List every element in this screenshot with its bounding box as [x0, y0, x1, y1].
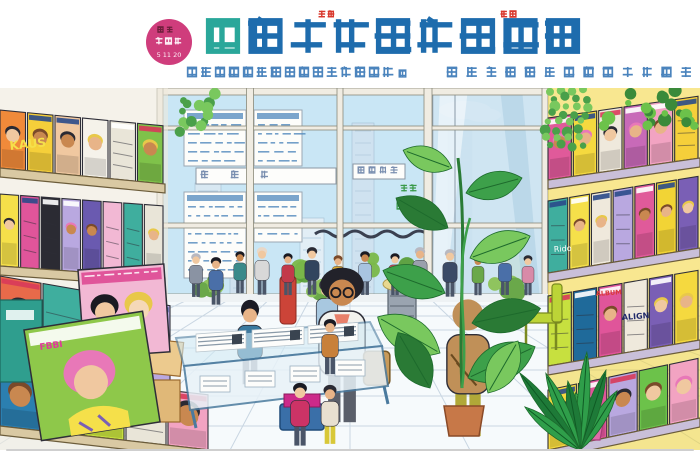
magazine-cover	[624, 104, 647, 169]
pseudo-glyph	[187, 67, 196, 77]
pseudo-glyph	[165, 38, 172, 45]
pseudo-glyph	[410, 184, 417, 191]
header: 5 11 20	[0, 0, 700, 88]
red-garment	[280, 276, 296, 324]
pseudo-glyph	[271, 67, 281, 77]
magazine-cover	[570, 194, 590, 269]
pseudo-glyph	[447, 67, 458, 77]
pseudo-glyph	[369, 67, 379, 77]
badge-date: 5 11 20	[157, 51, 182, 59]
pseudo-glyph	[355, 67, 366, 77]
magazine-cover	[548, 198, 568, 273]
magazine-cover	[635, 183, 655, 258]
pseudo-glyph	[369, 166, 376, 173]
pseudo-glyph	[327, 67, 338, 77]
pseudo-glyph	[201, 67, 211, 77]
pseudo-glyph	[681, 67, 691, 77]
pseudo-glyph	[510, 11, 517, 18]
pseudo-glyph	[545, 67, 555, 77]
pseudo-glyph	[157, 27, 163, 33]
pseudo-glyph	[505, 67, 516, 77]
pseudo-glyph	[503, 19, 539, 53]
window-sign	[353, 164, 405, 179]
pseudo-glyph	[565, 67, 575, 77]
magazine-cover	[83, 118, 109, 178]
magazine-cover	[55, 115, 81, 175]
magazine-cover	[21, 196, 40, 269]
magazine-cover	[138, 123, 164, 183]
pseudo-glyph	[319, 11, 326, 18]
pseudo-glyph	[401, 185, 408, 192]
pseudo-glyph	[603, 67, 614, 77]
subtitle-line	[187, 67, 691, 78]
magazine-cover	[657, 180, 677, 255]
pseudo-glyph	[583, 67, 594, 77]
window-sign	[196, 168, 336, 184]
pseudo-glyph	[248, 18, 282, 52]
magazine-cover	[613, 187, 633, 262]
pseudo-glyph	[661, 67, 671, 77]
pseudo-glyph	[383, 67, 394, 77]
pseudo-glyph	[545, 19, 580, 53]
magazine-cover	[649, 275, 672, 349]
magazine-cover	[41, 197, 60, 270]
cover-title-text: Rido	[554, 244, 572, 254]
issue-badge: 5 11 20	[146, 19, 192, 65]
pseudo-glyph	[257, 67, 267, 77]
pseudo-glyph	[358, 167, 364, 174]
store-illustration: KAUSFBBIRidoALIGNALBUM	[0, 88, 700, 450]
pseudo-glyph	[200, 171, 208, 179]
pseudo-glyph	[525, 67, 536, 77]
magazine-cover	[0, 194, 19, 267]
magazine-cover	[103, 202, 122, 275]
magazine-cover	[62, 199, 81, 272]
pseudo-glyph	[487, 67, 497, 77]
pseudo-glyph	[231, 171, 239, 179]
pseudo-glyph	[375, 19, 412, 53]
magazine-cover	[670, 358, 698, 424]
magazine-cover	[639, 365, 667, 431]
pseudo-glyph	[466, 67, 476, 77]
pseudo-glyph	[399, 70, 407, 78]
magazine-cover	[573, 288, 596, 362]
pseudo-glyph	[380, 166, 387, 173]
pseudo-glyph	[312, 67, 322, 77]
magazine-cover	[678, 176, 698, 251]
pseudo-glyph	[390, 166, 397, 173]
pseudo-glyph	[291, 19, 326, 53]
pseudo-glyph	[341, 67, 351, 77]
illustration-shadow	[6, 449, 694, 451]
magazine-cover	[591, 191, 611, 266]
pseudo-glyph	[642, 67, 651, 77]
pseudo-glyph	[208, 19, 237, 53]
pseudo-glyph	[167, 27, 173, 33]
pseudo-glyph	[299, 67, 309, 77]
pseudo-glyph	[623, 67, 633, 77]
pseudo-glyph	[417, 18, 452, 52]
magazine-cover-illustration: { "header": { "badge": { "bg": "#cf3d7c"…	[0, 0, 700, 470]
pseudo-glyph	[229, 67, 239, 77]
magazine-cover	[83, 200, 102, 273]
magazine-cover	[675, 270, 698, 344]
pseudo-glyph	[328, 10, 335, 17]
pseudo-glyph	[215, 67, 225, 77]
cover-title-text: ALIGN	[622, 311, 650, 322]
pseudo-glyph	[460, 19, 496, 53]
pseudo-glyph	[244, 67, 253, 77]
magazine-cover	[110, 121, 136, 181]
pseudo-glyph	[500, 11, 507, 18]
feature-cover-pinkhair	[24, 311, 160, 440]
pseudo-glyph	[334, 19, 369, 53]
magazine-title	[208, 10, 579, 52]
pseudo-glyph	[285, 67, 295, 77]
